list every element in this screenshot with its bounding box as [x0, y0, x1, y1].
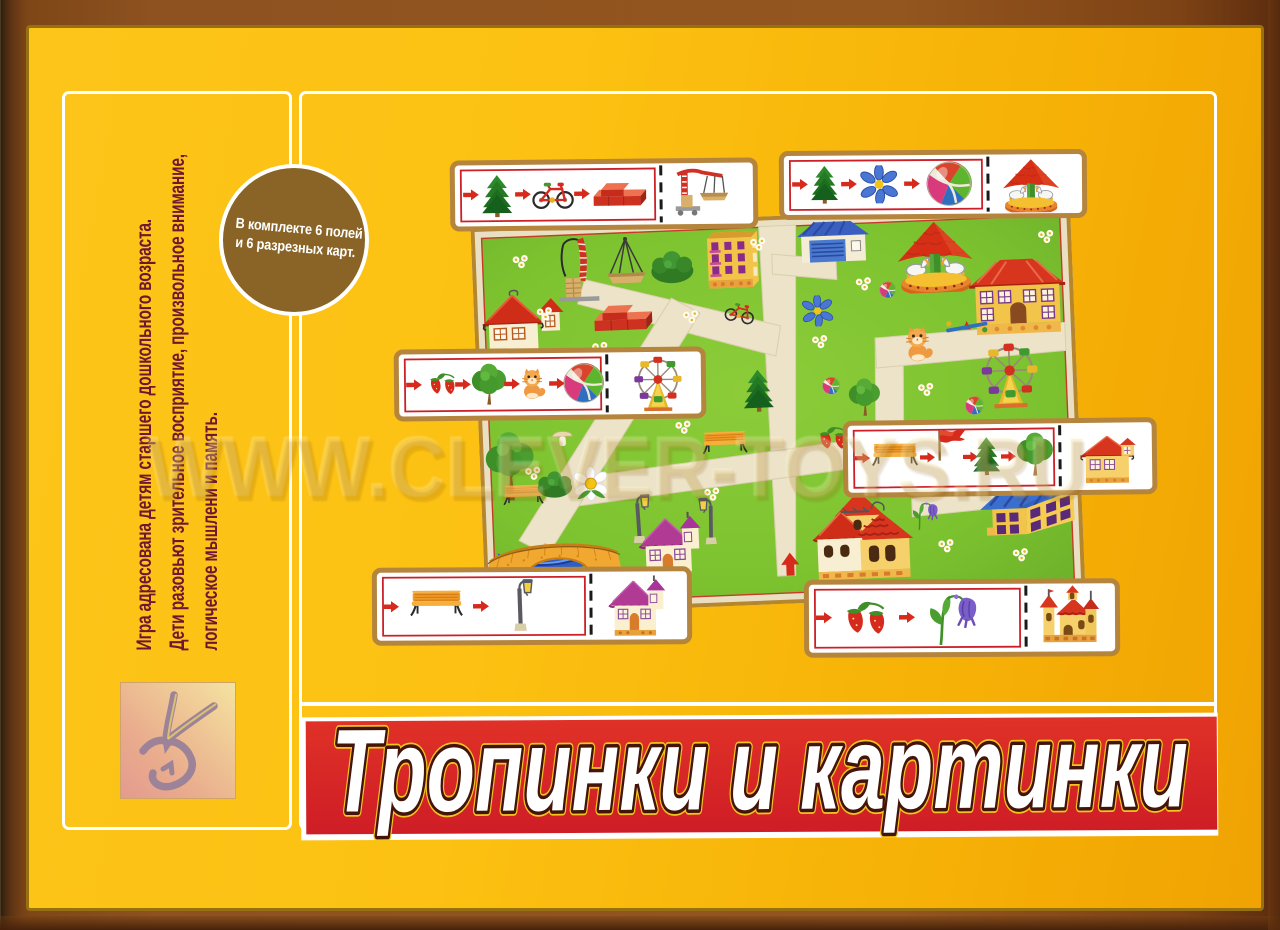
svg-text:Тропинки и картинки: Тропинки и картинки — [332, 700, 1189, 837]
